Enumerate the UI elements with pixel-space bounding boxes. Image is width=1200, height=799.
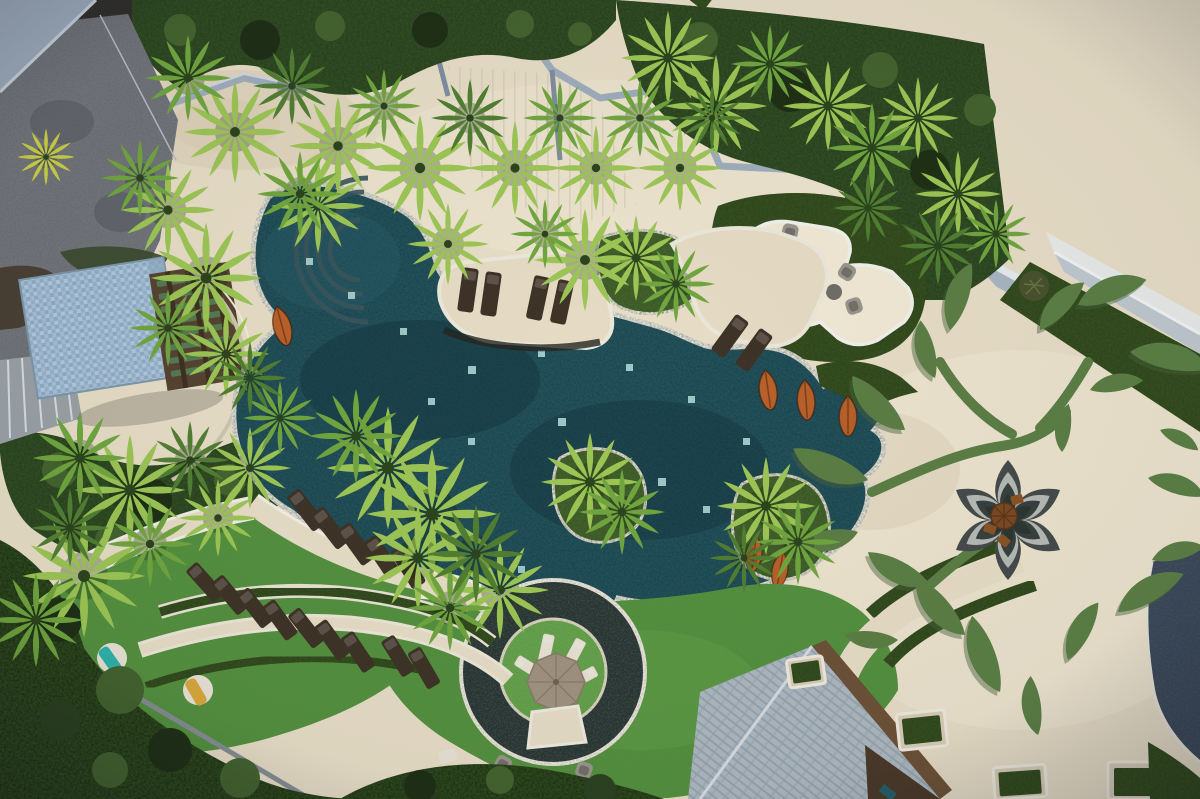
screenshot-root bbox=[0, 0, 1200, 799]
aerial-resort-photo bbox=[0, 0, 1200, 799]
dusk-vignette bbox=[0, 0, 1200, 799]
